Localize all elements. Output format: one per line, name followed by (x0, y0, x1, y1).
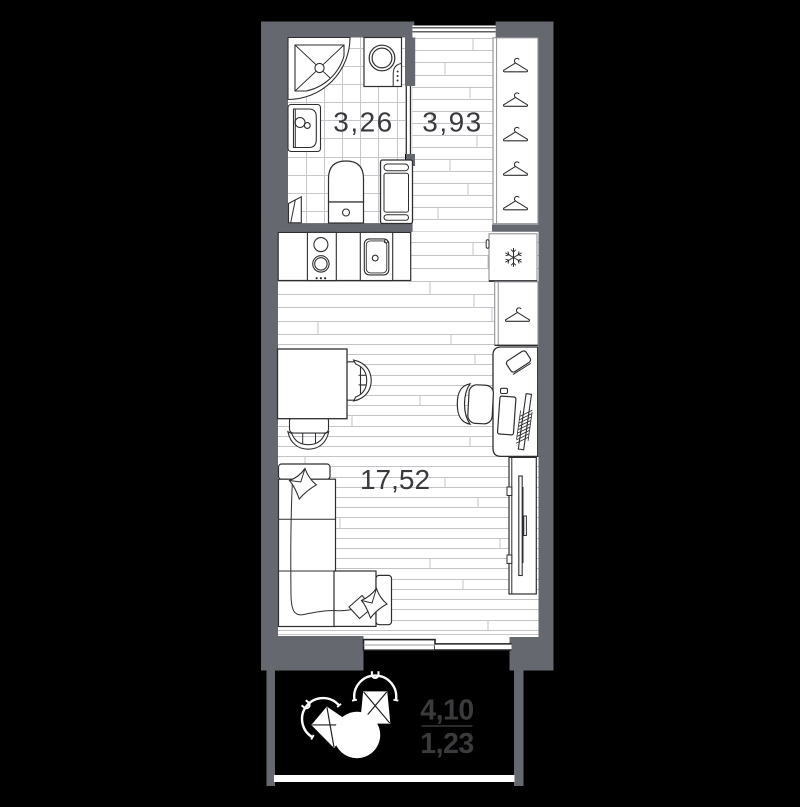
svg-text:17,52: 17,52 (360, 464, 430, 495)
svg-text:3,26: 3,26 (333, 107, 394, 138)
svg-text:1,23: 1,23 (420, 728, 473, 760)
svg-text:4,10: 4,10 (420, 695, 473, 727)
svg-text:3,93: 3,93 (422, 107, 483, 138)
